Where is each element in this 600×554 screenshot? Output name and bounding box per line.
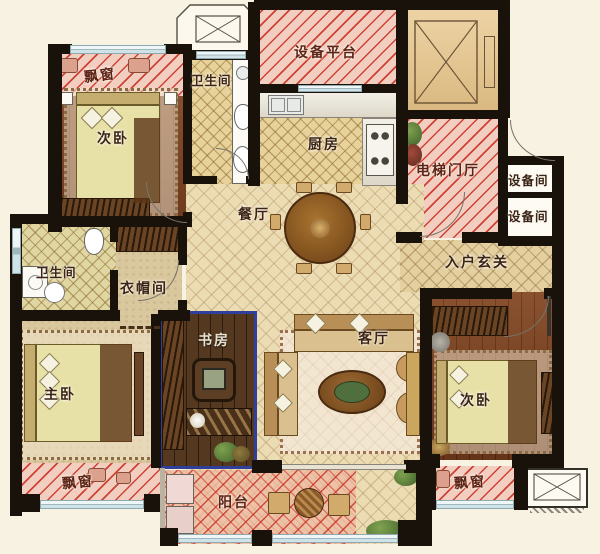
wall: [514, 464, 528, 510]
window: [70, 45, 166, 54]
wardrobe-icon: [432, 306, 508, 336]
label-equipment-room-2: 设备间: [508, 206, 549, 225]
laundry-unit-icon: [166, 474, 194, 504]
wall: [252, 530, 272, 546]
label-living-room: 客厅: [358, 328, 390, 348]
toilet-icon: [84, 228, 104, 255]
wall: [398, 520, 432, 546]
window: [40, 500, 144, 509]
wall: [396, 232, 422, 243]
bookshelf-icon: [162, 314, 184, 450]
label-equipment-room-1: 设备间: [508, 170, 549, 189]
floor-plan: 书房: [0, 0, 600, 554]
bathroom-window: [12, 228, 21, 274]
tv-console-icon: [406, 352, 420, 436]
bay-chair-icon: [128, 58, 150, 73]
wall: [183, 176, 217, 184]
tray-icon: [334, 381, 370, 403]
label-master-bedroom: 主卧: [44, 384, 76, 404]
room-study-highlighted: 书房: [159, 311, 257, 469]
window: [196, 51, 246, 59]
wall: [552, 244, 564, 468]
desk-flower-icon: [190, 413, 205, 428]
study-label: 书房: [198, 330, 230, 350]
label-kitchen: 厨房: [308, 134, 340, 154]
balcony-table-icon: [294, 488, 324, 518]
wall: [400, 0, 510, 10]
bed-bench-icon: [134, 352, 144, 436]
stair-door-arc: [510, 120, 555, 161]
window: [436, 500, 514, 509]
wall: [158, 310, 190, 321]
plate-icon: [310, 218, 330, 238]
label-entrance-foyer: 入户玄关: [445, 252, 509, 272]
wall: [420, 288, 512, 299]
wall: [10, 310, 120, 321]
elevator-rail-icon: [484, 36, 495, 88]
wall: [396, 0, 408, 204]
kitchen-sink-icon: [268, 95, 304, 115]
dining-chair-icon: [336, 182, 352, 193]
label-bathroom-top: 卫生间: [191, 70, 232, 89]
elevator-icon: [414, 20, 478, 104]
dining-chair-icon: [270, 214, 281, 230]
label-bay-window-bottom-right: 飘窗: [453, 471, 486, 493]
label-elevator-hall: 电梯门厅: [416, 160, 480, 180]
wall: [498, 116, 508, 240]
balcony-window: [178, 534, 252, 543]
blanket: [508, 360, 537, 444]
wall: [48, 44, 72, 54]
ac-platform-bottom-right-icon: [526, 468, 588, 508]
bed-headboard: [76, 92, 160, 105]
label-bay-window-top-left: 飘窗: [83, 63, 117, 87]
bed-headboard: [436, 360, 447, 444]
sofa-icon: [294, 330, 414, 352]
label-bay-window-bottom-left: 飘窗: [61, 471, 95, 494]
label-bedroom-right: 次卧: [460, 390, 492, 410]
wall: [151, 314, 161, 468]
label-cloakroom: 衣帽间: [120, 278, 168, 298]
flower-icon: [436, 470, 450, 488]
balcony-window: [272, 534, 398, 543]
sink-bowl: [287, 98, 301, 112]
study-plant-pot-icon: [232, 446, 250, 462]
dining-chair-icon: [296, 263, 312, 274]
wall: [178, 227, 187, 265]
label-bedroom-top-left: 次卧: [97, 128, 129, 148]
dining-chair-icon: [296, 182, 312, 193]
nightstand-icon: [164, 92, 177, 105]
wall: [110, 222, 118, 242]
label-bathroom-left: 卫生间: [36, 262, 77, 281]
blanket: [100, 344, 132, 442]
hatch-strip: [530, 508, 584, 513]
label-dining-room: 餐厅: [238, 204, 270, 224]
wall: [252, 460, 282, 473]
dining-chair-icon: [336, 263, 352, 274]
wall: [420, 288, 432, 470]
wall: [552, 156, 564, 246]
laptop-icon: [202, 368, 226, 390]
wall: [10, 494, 40, 512]
sliding-door: [282, 464, 406, 470]
side-table-icon: [430, 332, 450, 352]
cloak-wardrobe-icon: [116, 226, 180, 252]
wall: [498, 0, 510, 118]
balcony-frame: [160, 468, 165, 530]
kitchen-window: [298, 85, 362, 92]
dining-chair-icon: [360, 214, 371, 230]
open-passage-dashed: [120, 326, 160, 329]
balcony-chair-icon: [268, 492, 290, 514]
wall: [254, 0, 406, 10]
wall: [248, 2, 260, 186]
label-equipment-platform: 设备平台: [294, 42, 358, 62]
balcony-chair-icon: [328, 494, 350, 516]
wall: [160, 528, 178, 546]
flower-icon: [116, 472, 131, 484]
wall: [500, 192, 556, 198]
wall: [462, 232, 504, 243]
wall: [48, 44, 62, 232]
stove-icon: [366, 124, 394, 176]
sink-bowl: [271, 98, 285, 112]
label-balcony: 阳台: [218, 492, 250, 512]
wall: [400, 110, 508, 119]
pedestal-sink-icon: [44, 282, 65, 303]
bed-headboard: [24, 344, 36, 442]
